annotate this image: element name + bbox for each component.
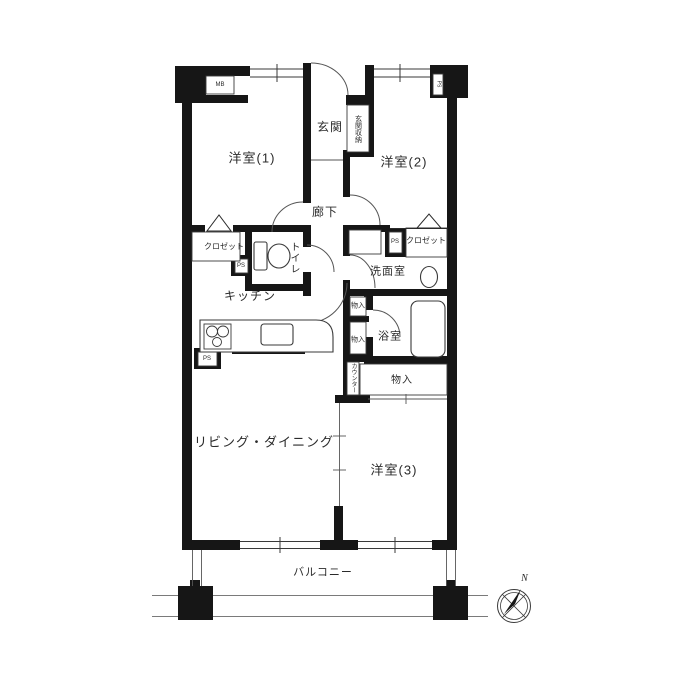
label-balcony: バルコニー	[293, 568, 353, 579]
wall-left	[182, 95, 192, 550]
label-ps-toilet: PS	[237, 263, 245, 269]
entrance-door-arc	[311, 63, 348, 95]
label-ps-pillar: PS	[436, 81, 441, 88]
label-western-room-3: 洋室(3)	[371, 464, 418, 477]
wall-entrance-left	[303, 63, 311, 203]
label-washroom: 洗面室	[370, 267, 406, 278]
washroom-sink	[421, 267, 438, 288]
wall-washroom-bottom	[343, 289, 448, 296]
label-kitchen: キッチン	[224, 290, 276, 302]
label-storage-3: 物入	[391, 376, 413, 386]
label-closet-right: クロゼット	[406, 237, 446, 245]
windows	[240, 64, 432, 553]
wall-right	[447, 97, 457, 550]
label-toilet: トイレ	[288, 242, 298, 275]
toilet-door-arc	[307, 245, 334, 272]
label-entrance-storage: 玄関収納	[355, 115, 362, 143]
kitchen-sink	[261, 324, 293, 345]
label-storage-2: 物入	[351, 337, 365, 344]
hall-door-arc	[307, 283, 347, 323]
compass-icon	[498, 589, 531, 623]
label-closet-left: クロゼット	[204, 243, 244, 251]
label-meter-box: MB	[216, 82, 225, 88]
floor-plan: 洋室(1) 洋室(2) 洋室(3) 玄関 玄関収納 廊下 トイレ キッチン リビ…	[0, 0, 690, 690]
floor-plan-linework	[0, 0, 690, 690]
room2-door-arc	[350, 195, 380, 225]
label-entrance: 玄関	[317, 121, 343, 133]
label-living-dining: リビング・ダイニング	[194, 436, 334, 449]
label-western-room-1: 洋室(1)	[229, 152, 276, 165]
wall-top-left	[206, 66, 250, 76]
bathtub	[411, 301, 445, 357]
toilet-bowl	[268, 244, 290, 268]
label-hallway: 廊下	[312, 206, 338, 218]
label-western-room-2: 洋室(2)	[381, 156, 428, 169]
label-storage-1: 物入	[351, 303, 365, 310]
toilet-tank	[254, 242, 267, 270]
label-compass-north: N	[521, 574, 529, 584]
label-ps-washroom: PS	[391, 239, 399, 245]
label-ps-kitchen: PS	[203, 356, 211, 362]
washer-space-box	[349, 230, 381, 254]
closet-left-door-marker	[207, 215, 231, 231]
label-counter: カウンター	[350, 363, 356, 393]
closet-right-door-marker	[417, 214, 441, 228]
wall-bottom	[182, 540, 240, 550]
balcony-pillars-over	[178, 586, 468, 620]
label-bathroom: 浴室	[378, 332, 402, 343]
